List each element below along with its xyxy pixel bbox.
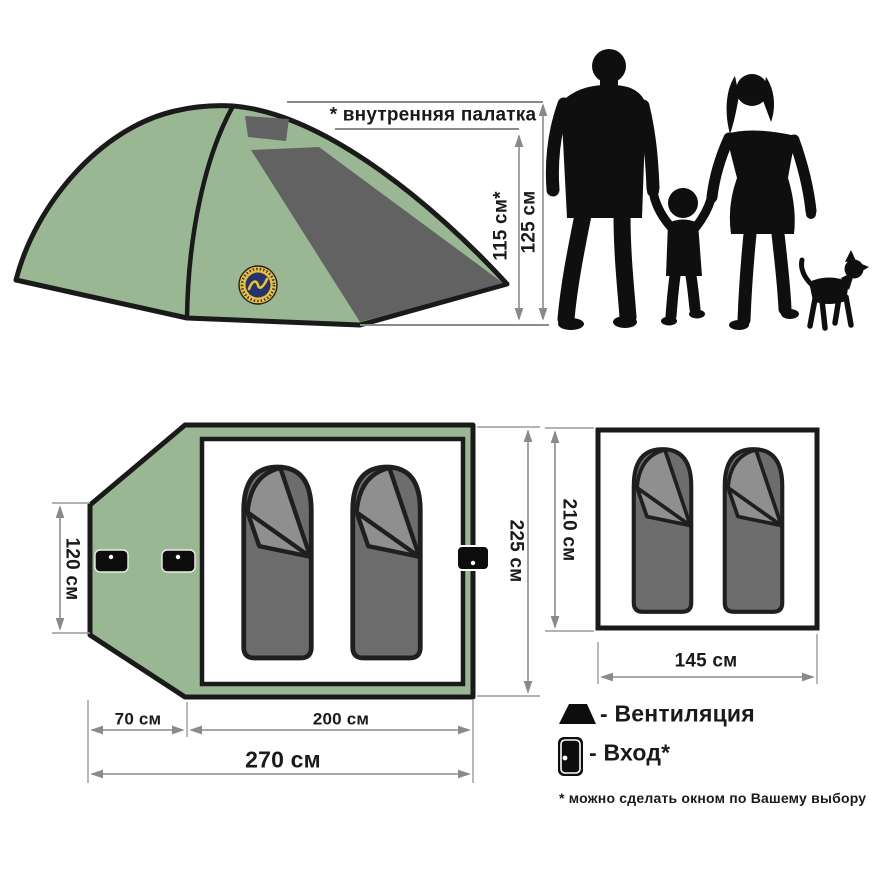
dimension-total-length: 270 см [245,749,321,772]
dimension-vestibule-length: 70 см [115,711,162,728]
man-silhouette [552,49,659,330]
inner-tent-plan [545,428,817,684]
floor-plan [52,425,540,783]
legend-footnote: * можно сделать окном по Вашему выбору [559,791,866,805]
tent-vent-panel [245,116,289,141]
legend-ventilation-label: - Вентиляция [600,703,755,726]
sleeping-bag [725,449,783,612]
sleeping-bag [353,467,421,658]
dimension-inner-width: 225 см [507,520,526,583]
sleeping-bag [244,467,312,658]
family-silhouette [552,49,869,330]
dimension-room-length: 200 см [313,711,369,728]
ventilation-icon [559,704,596,724]
tent-dimensions-diagram: * внутренняя палатка 115 см* 125 см 120 … [0,0,875,875]
entrance-icon [457,546,489,570]
diagram-canvas [0,0,875,875]
dimension-vestibule-height: 120 см [63,538,82,601]
dimension-inner-tent-height: 210 см [560,499,579,562]
brand-logo [239,266,277,304]
child-silhouette [654,188,711,326]
entrance-icon [162,550,195,572]
legend-entrance-label: - Вход* [589,742,670,765]
dimension-inner-tent-width: 145 см [675,652,738,671]
inner-tent-note: * внутренняя палатка [330,106,537,125]
dog-silhouette [801,250,869,328]
tent-side-view [16,102,549,325]
dimension-inner-height: 115 см* [492,191,511,260]
entrance-legend-icon [558,737,583,776]
floor-plan-inner-room [202,439,463,684]
woman-silhouette [707,74,816,330]
sleeping-bag [634,449,692,612]
entrance-icon [95,550,128,572]
dimension-outer-height: 125 см [520,191,539,254]
